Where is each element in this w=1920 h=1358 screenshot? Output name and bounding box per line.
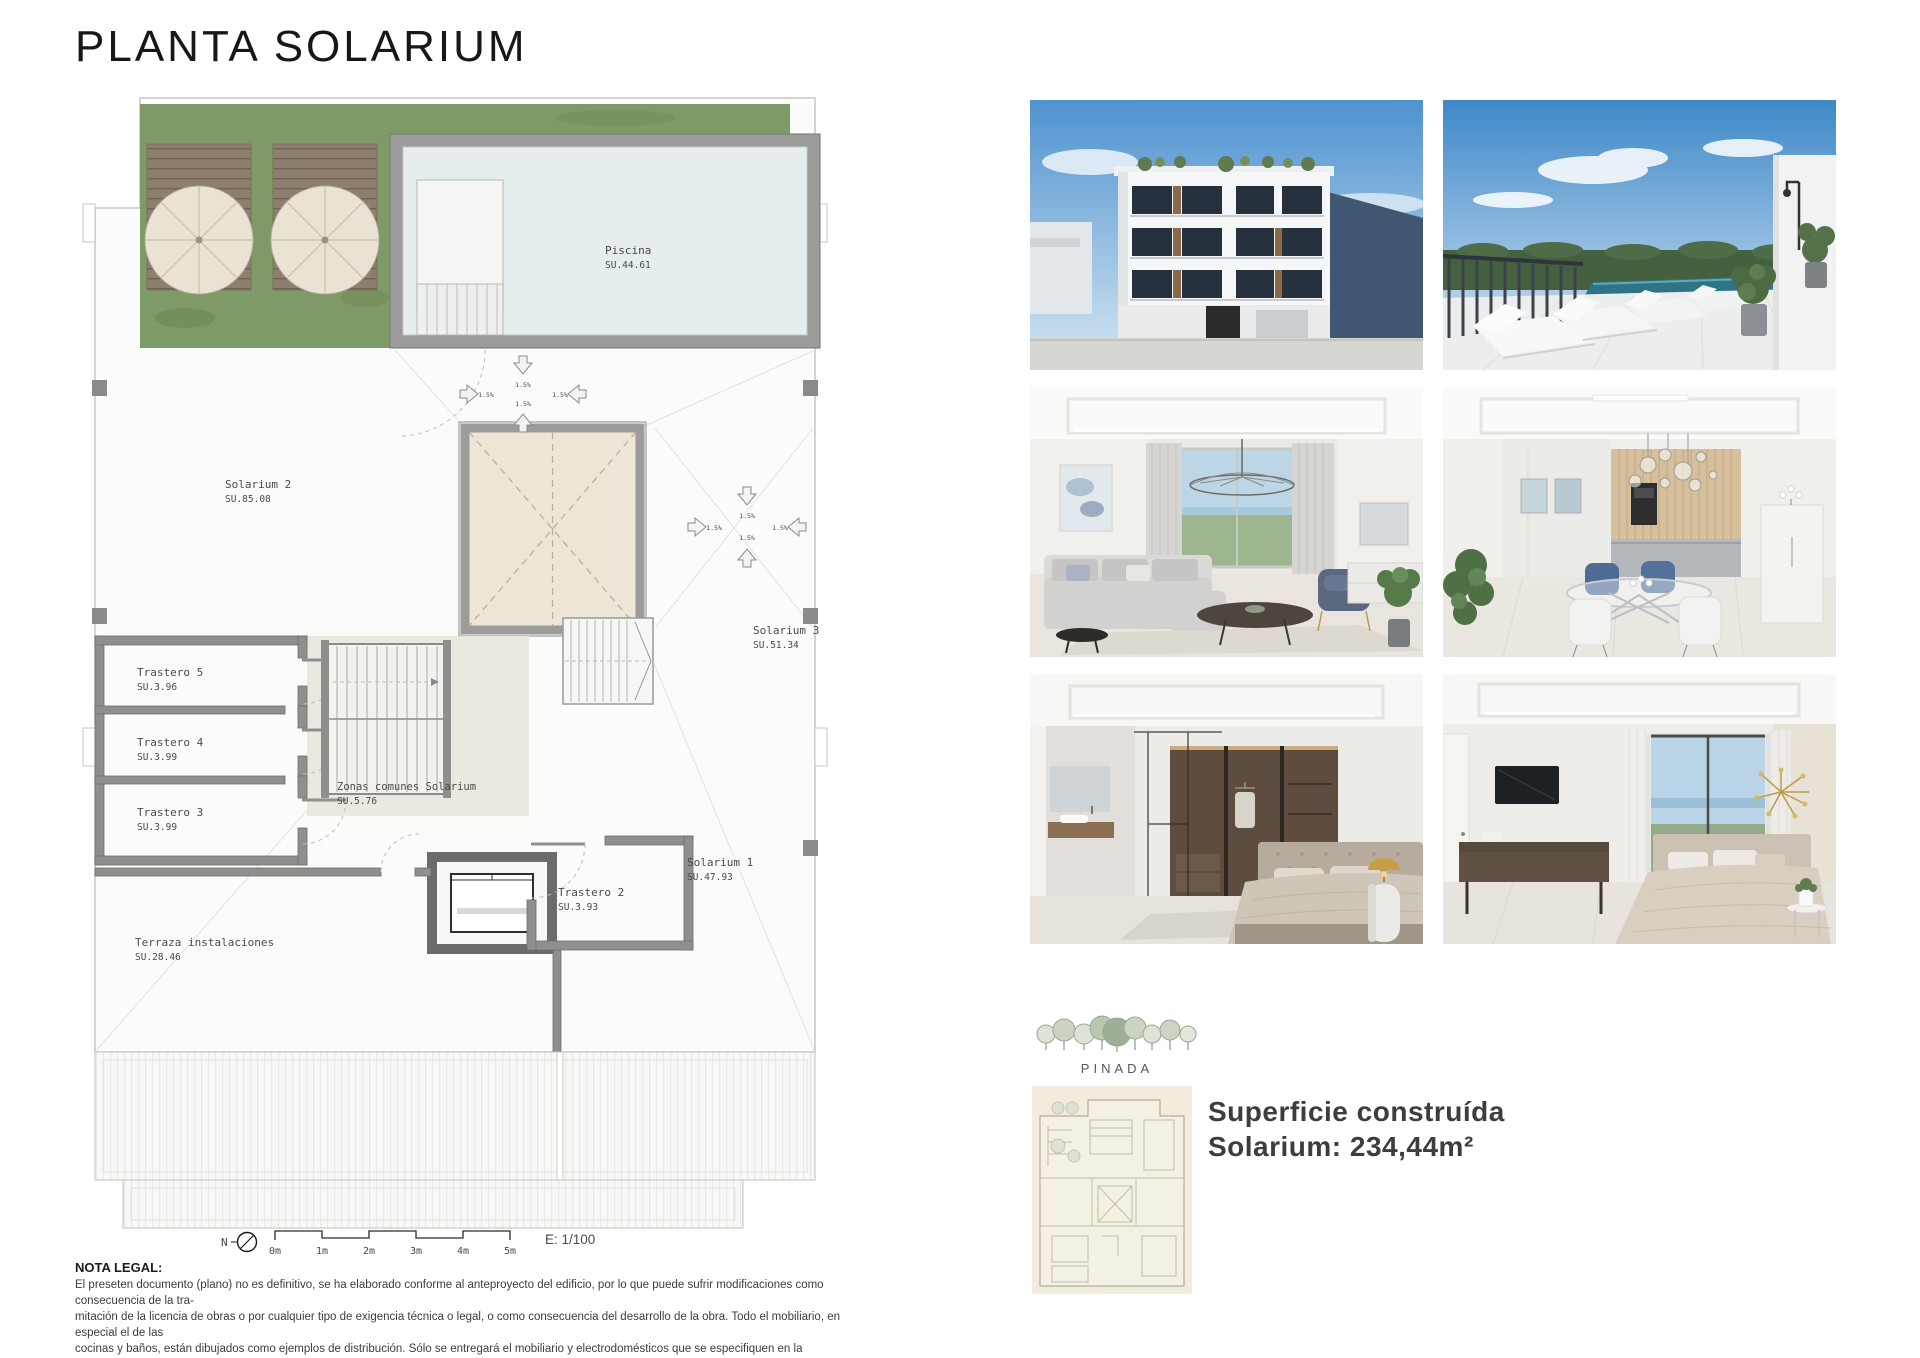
svg-text:1.5%: 1.5%: [515, 381, 531, 389]
legal-line: cocinas y baños, están dibujados como ej…: [75, 1341, 841, 1358]
page-title: PLANTA SOLARIUM: [75, 22, 528, 72]
brochure-page: PLANTA SOLARIUM: [0, 0, 1920, 1358]
legal-heading: NOTA LEGAL:: [75, 1260, 841, 1275]
svg-text:1.5%: 1.5%: [515, 400, 531, 408]
svg-text:Piscina: Piscina: [605, 244, 651, 257]
elevator: [427, 852, 557, 954]
svg-text:Zonas comunes Solarium: Zonas comunes Solarium: [337, 781, 476, 793]
lower-terrace: [95, 1052, 815, 1228]
pool: Piscina SU.44.61: [390, 134, 820, 348]
svg-text:Trastero 5: Trastero 5: [137, 666, 203, 679]
photo-bedroom-window: [1443, 674, 1836, 944]
svg-text:1.5%: 1.5%: [739, 512, 755, 520]
scale-bar: 0m 1m 2m 3m 4m 5m E: 1/100: [269, 1231, 595, 1257]
legal-line: El preseten documento (plano) no es defi…: [75, 1277, 841, 1309]
photo-rooftop-terrace: [1443, 100, 1836, 370]
svg-text:SU.3.99: SU.3.99: [137, 752, 177, 763]
svg-text:1.5%: 1.5%: [552, 391, 568, 399]
brand-name: PINADA: [1032, 1061, 1202, 1076]
floor-plan-drawing: Piscina SU.44.61 1.5% 1.5% 1.5% 1.5%: [75, 88, 835, 1263]
svg-text:SU.51.34: SU.51.34: [753, 640, 799, 651]
svg-text:4m: 4m: [457, 1246, 469, 1257]
svg-text:Trastero 3: Trastero 3: [137, 806, 203, 819]
svg-text:N: N: [221, 1236, 228, 1249]
svg-text:SU.3.99: SU.3.99: [137, 822, 177, 833]
svg-text:Solarium 3: Solarium 3: [753, 624, 819, 637]
svg-text:0m: 0m: [269, 1246, 281, 1257]
brand-block: PINADA: [1032, 1010, 1202, 1076]
svg-text:SU.3.96: SU.3.96: [137, 682, 177, 693]
pinada-trees-logo: [1032, 1010, 1202, 1054]
stair-secondary: [563, 618, 653, 704]
svg-text:1.5%: 1.5%: [478, 391, 494, 399]
svg-text:1.5%: 1.5%: [706, 524, 722, 532]
sofa: [1044, 555, 1226, 631]
built-area-summary: Superficie construída Solarium: 234,44m²: [1208, 1094, 1505, 1164]
umbrella: [271, 186, 379, 294]
svg-text:SU.28.46: SU.28.46: [135, 952, 181, 963]
stair-core: [321, 640, 451, 798]
svg-text:Solarium 1: Solarium 1: [687, 856, 753, 869]
svg-text:1m: 1m: [316, 1246, 328, 1257]
legal-line: mitación de la licencia de obras o por c…: [75, 1309, 841, 1341]
svg-text:3m: 3m: [410, 1246, 422, 1257]
site-plan-thumbnail: [1032, 1086, 1192, 1294]
north-indicator: N: [221, 1233, 257, 1252]
pool-steps: [417, 284, 503, 335]
svg-text:SU.5.76: SU.5.76: [337, 796, 377, 807]
umbrella: [145, 186, 253, 294]
photo-dining-kitchen: [1443, 387, 1836, 657]
photo-building-exterior: [1030, 100, 1423, 370]
photo-living-room: [1030, 387, 1423, 657]
svg-text:Trastero 4: Trastero 4: [137, 736, 204, 749]
svg-text:2m: 2m: [363, 1246, 375, 1257]
svg-text:Trastero 2: Trastero 2: [558, 886, 624, 899]
photo-bedroom-closet: [1030, 674, 1423, 944]
summary-line2: Solarium: 234,44m²: [1208, 1129, 1505, 1164]
svg-text:SU.85.08: SU.85.08: [225, 494, 271, 505]
svg-text:SU.47.93: SU.47.93: [687, 872, 733, 883]
svg-text:E: 1/100: E: 1/100: [545, 1232, 595, 1247]
legal-note: NOTA LEGAL: El preseten documento (plano…: [75, 1260, 841, 1358]
svg-text:1.5%: 1.5%: [739, 534, 755, 542]
svg-text:SU.3.93: SU.3.93: [558, 902, 598, 913]
svg-text:Terraza instalaciones: Terraza instalaciones: [135, 936, 274, 949]
summary-line1: Superficie construída: [1208, 1094, 1505, 1129]
svg-text:5m: 5m: [504, 1246, 516, 1257]
svg-text:1.5%: 1.5%: [772, 524, 788, 532]
skylight: [459, 422, 646, 636]
svg-text:Solarium 2: Solarium 2: [225, 478, 291, 491]
svg-text:SU.44.61: SU.44.61: [605, 260, 651, 271]
